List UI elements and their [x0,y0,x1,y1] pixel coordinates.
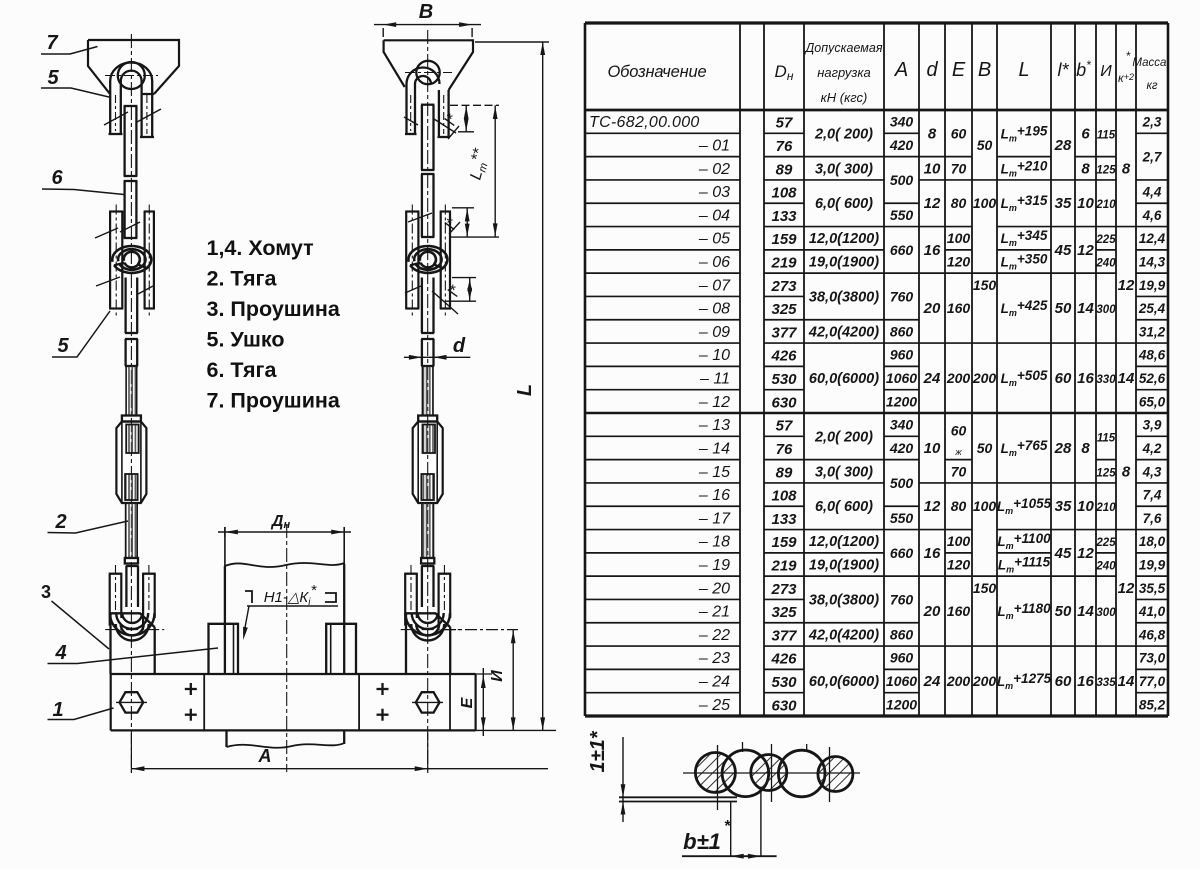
svg-text:120: 120 [947,557,971,573]
svg-text:80: 80 [951,195,967,211]
svg-text:960: 960 [890,347,914,363]
svg-text:52,6: 52,6 [1139,371,1166,386]
svg-text:12,0(1200): 12,0(1200) [809,534,879,550]
svg-text:19,9: 19,9 [1139,278,1166,293]
svg-text:И: И [489,670,506,682]
svg-text:660: 660 [890,242,914,258]
svg-text:– 25: – 25 [698,697,730,714]
svg-text:3,9: 3,9 [1143,418,1162,433]
svg-text:330: 330 [1096,374,1116,386]
svg-text:19,9: 19,9 [1139,558,1166,573]
svg-text:77,0: 77,0 [1139,674,1166,689]
svg-text:57: 57 [776,418,793,435]
svg-text:3. Проушина: 3. Проушина [207,297,341,321]
svg-text:– 01: – 01 [698,137,730,154]
svg-text:530: 530 [771,371,797,388]
svg-text:125: 125 [1096,164,1116,176]
svg-text:60: 60 [1055,673,1072,690]
svg-text:– 10: – 10 [698,347,730,364]
svg-text:7: 7 [46,32,58,54]
svg-text:*: * [724,818,731,835]
svg-text:76: 76 [776,441,793,458]
svg-text:– 03: – 03 [698,184,730,201]
svg-text:10: 10 [1077,498,1094,515]
svg-text:240: 240 [1095,258,1116,270]
svg-text:– 21: – 21 [698,604,730,621]
svg-text:12,4: 12,4 [1139,231,1166,246]
svg-text:20: 20 [923,603,941,620]
svg-text:160: 160 [947,300,971,316]
svg-text:100: 100 [947,533,971,549]
svg-text:E: E [952,59,966,81]
svg-text:– 09: – 09 [698,324,730,341]
svg-text:12: 12 [1077,545,1094,562]
svg-text:19,0(1900): 19,0(1900) [809,255,879,271]
svg-text:– 14: – 14 [698,440,730,457]
svg-text:– 16: – 16 [698,487,730,504]
svg-text:377: 377 [771,324,797,341]
svg-text:660: 660 [890,545,914,561]
svg-text:4: 4 [54,642,66,664]
svg-text:16: 16 [1077,673,1094,690]
svg-text:– 04: – 04 [698,207,730,224]
svg-text:6,0( 600): 6,0( 600) [815,499,873,515]
svg-text:25,4: 25,4 [1138,301,1166,316]
svg-text:ТС-682,00.000: ТС-682,00.000 [589,114,700,131]
svg-text:L: L [514,384,536,396]
svg-text:42,0(4200): 42,0(4200) [808,324,879,340]
svg-text:125: 125 [1096,467,1116,479]
svg-text:200: 200 [972,673,997,689]
svg-text:8: 8 [928,125,937,142]
svg-text:2: 2 [54,511,66,533]
svg-text:300: 300 [1096,607,1116,619]
svg-text:10: 10 [924,440,941,457]
svg-text:500: 500 [890,172,914,188]
svg-text:3,0( 300): 3,0( 300) [815,464,873,480]
svg-text:80: 80 [951,498,967,514]
svg-text:35,5: 35,5 [1139,581,1166,596]
svg-text:60,0(6000): 60,0(6000) [809,371,879,387]
svg-text:159: 159 [771,231,797,248]
svg-text:– 17: – 17 [698,510,731,527]
svg-text:60,0(6000): 60,0(6000) [809,674,879,690]
svg-text:426: 426 [770,348,797,365]
svg-text:B: B [419,1,433,23]
svg-text:– 22: – 22 [698,627,730,644]
svg-text:150: 150 [973,277,997,293]
svg-text:150: 150 [973,580,997,596]
svg-text:630: 630 [771,697,797,714]
svg-text:6: 6 [51,167,63,189]
svg-text:– 08: – 08 [698,301,730,318]
svg-text:2,3: 2,3 [1142,115,1162,130]
svg-text:860: 860 [890,626,914,642]
svg-text:89: 89 [776,161,793,178]
svg-text:l*: l* [1057,60,1069,80]
svg-text:65,0: 65,0 [1139,394,1166,409]
svg-text:2,7: 2,7 [1142,150,1163,165]
svg-text:– 24: – 24 [698,674,730,691]
svg-text:60: 60 [1055,370,1072,387]
svg-text:18,0: 18,0 [1139,534,1166,549]
svg-text:70: 70 [951,160,967,176]
svg-text:115: 115 [1097,129,1116,141]
svg-text:B: B [978,59,991,81]
svg-text:16: 16 [924,242,941,259]
svg-text:45: 45 [1054,545,1072,562]
svg-text:12: 12 [1077,242,1094,259]
svg-text:20: 20 [923,300,941,317]
svg-text:85,2: 85,2 [1139,697,1166,712]
svg-text:L: L [1018,59,1029,81]
svg-text:24: 24 [923,673,941,690]
svg-text:– 18: – 18 [698,534,730,551]
svg-text:219: 219 [770,558,797,575]
svg-text:200: 200 [946,370,971,386]
svg-text:273: 273 [770,278,797,295]
svg-text:ж: ж [954,447,962,457]
svg-text:200: 200 [972,370,997,386]
svg-text:Обозначение: Обозначение [608,63,707,81]
svg-text:50: 50 [977,137,993,153]
svg-text:210: 210 [1095,199,1116,211]
svg-text:d: d [926,59,938,81]
svg-text:45: 45 [1054,242,1072,259]
svg-text:6: 6 [1081,125,1090,142]
svg-text:Масса,: Масса, [1132,57,1169,69]
svg-text:4,3: 4,3 [1142,464,1162,479]
svg-text:14: 14 [1077,603,1094,620]
svg-text:960: 960 [890,650,914,666]
svg-text:35: 35 [1055,195,1072,212]
svg-text:50: 50 [1055,300,1072,317]
svg-text:– 05: – 05 [698,231,730,248]
svg-text:1060: 1060 [886,673,917,689]
svg-text:420: 420 [889,137,914,153]
svg-text:14: 14 [1077,300,1094,317]
svg-text:4,2: 4,2 [1142,441,1162,456]
svg-text:1: 1 [52,699,63,721]
svg-text:– 19: – 19 [698,557,730,574]
svg-text:73,0: 73,0 [1139,651,1166,666]
svg-text:500: 500 [890,475,914,491]
svg-text:8: 8 [1122,463,1131,480]
svg-text:кг: кг [1146,80,1157,92]
svg-text:57: 57 [776,115,793,132]
svg-text:76: 76 [776,138,793,155]
svg-text:– 06: – 06 [698,254,730,271]
svg-text:115: 115 [1097,432,1116,444]
svg-text:335: 335 [1096,677,1116,689]
svg-text:225: 225 [1095,537,1116,549]
svg-text:– 23: – 23 [698,650,730,667]
svg-text:7,6: 7,6 [1143,511,1162,526]
svg-text:325: 325 [771,301,797,318]
svg-text:14: 14 [1118,673,1135,690]
svg-text:340: 340 [890,114,914,130]
svg-text:70: 70 [951,463,967,479]
svg-text:340: 340 [890,417,914,433]
svg-text:12,0(1200): 12,0(1200) [809,231,879,247]
svg-text:108: 108 [771,488,797,505]
svg-text:377: 377 [771,627,797,644]
svg-text:– 02: – 02 [698,161,730,178]
svg-text:10: 10 [1077,195,1094,212]
svg-text:– 07: – 07 [698,277,731,294]
svg-text:E: E [459,696,476,708]
svg-text:4,4: 4,4 [1142,185,1162,200]
svg-text:5. Ушко: 5. Ушко [207,328,285,352]
svg-text:530: 530 [771,674,797,691]
svg-text:630: 630 [771,394,797,411]
svg-text:300: 300 [1096,304,1116,316]
svg-text:1,4. Хомут: 1,4. Хомут [207,236,314,260]
svg-text:A: A [258,746,272,766]
svg-text:8: 8 [1081,440,1090,457]
svg-text:1±1*: 1±1* [587,730,609,772]
svg-text:12: 12 [1118,277,1135,294]
svg-text:210: 210 [1095,502,1116,514]
svg-text:1200: 1200 [886,393,917,409]
svg-text:31,2: 31,2 [1139,324,1166,339]
svg-text:19,0(1900): 19,0(1900) [809,558,879,574]
svg-text:И: И [1100,63,1112,80]
svg-text:426: 426 [770,651,797,668]
svg-text:28: 28 [1054,440,1072,457]
svg-text:50: 50 [977,440,993,456]
svg-text:14: 14 [1118,370,1135,387]
svg-text:219: 219 [770,255,797,272]
svg-text:273: 273 [770,581,797,598]
svg-text:*: * [1126,49,1131,63]
svg-text:14,3: 14,3 [1139,255,1166,270]
svg-text:12: 12 [924,498,941,515]
svg-text:10: 10 [924,160,941,177]
svg-text:– 15: – 15 [698,464,730,481]
svg-text:550: 550 [890,207,914,223]
svg-text:550: 550 [890,510,914,526]
svg-text:60: 60 [951,125,967,141]
svg-text:100: 100 [973,195,997,211]
svg-text:860: 860 [890,323,914,339]
svg-text:38,0(3800): 38,0(3800) [809,592,879,608]
svg-text:5: 5 [47,67,59,89]
svg-text:42,0(4200): 42,0(4200) [808,627,879,643]
svg-text:нагрузка: нагрузка [817,65,871,80]
svg-text:8: 8 [1122,160,1131,177]
svg-text:8: 8 [1081,160,1090,177]
svg-text:420: 420 [889,440,914,456]
svg-text:– 11: – 11 [699,371,730,388]
svg-text:3,0( 300): 3,0( 300) [815,161,873,177]
svg-text:120: 120 [947,254,971,270]
svg-text:6. Тяга: 6. Тяга [207,358,278,382]
svg-text:d: d [453,335,466,357]
svg-text:2,0( 200): 2,0( 200) [814,429,873,445]
svg-text:89: 89 [776,464,793,481]
svg-text:108: 108 [771,185,797,202]
svg-text:48,6: 48,6 [1138,348,1166,363]
svg-text:35: 35 [1055,498,1072,515]
svg-text:5: 5 [57,335,69,357]
svg-text:4,6: 4,6 [1142,208,1162,223]
svg-text:Допускаемая: Допускаемая [804,41,883,55]
svg-text:– 13: – 13 [698,417,730,434]
svg-text:2. Тяга: 2. Тяга [207,267,278,291]
svg-text:38,0(3800): 38,0(3800) [809,289,879,305]
svg-text:46,8: 46,8 [1138,627,1166,642]
svg-text:7,4: 7,4 [1143,488,1162,503]
svg-text:133: 133 [771,511,797,528]
svg-text:160: 160 [947,603,971,619]
svg-text:240: 240 [1095,561,1116,573]
svg-text:100: 100 [947,230,971,246]
svg-text:41,0: 41,0 [1138,604,1166,619]
svg-text:1200: 1200 [886,696,917,712]
svg-text:28: 28 [1054,137,1072,154]
svg-text:16: 16 [924,545,941,562]
svg-text:2,0( 200): 2,0( 200) [814,126,873,142]
svg-text:A: A [894,59,908,81]
svg-text:16: 16 [1077,370,1094,387]
svg-text:133: 133 [771,208,797,225]
svg-text:60: 60 [951,423,967,439]
svg-text:кН (кгс): кН (кгс) [821,90,868,105]
svg-text:159: 159 [771,534,797,551]
svg-text:100: 100 [973,498,997,514]
svg-text:6,0( 600): 6,0( 600) [815,196,873,212]
svg-text:760: 760 [890,591,914,607]
svg-text:12: 12 [924,195,941,212]
svg-text:b±1: b±1 [683,829,721,854]
svg-text:3: 3 [41,582,51,602]
svg-text:– 20: – 20 [698,580,730,597]
svg-text:12: 12 [1118,580,1135,597]
svg-text:24: 24 [923,370,941,387]
svg-text:– 12: – 12 [698,394,730,411]
svg-text:760: 760 [890,288,914,304]
svg-text:1060: 1060 [886,370,917,386]
svg-text:225: 225 [1095,234,1116,246]
svg-text:325: 325 [771,604,797,621]
svg-text:7. Проушина: 7. Проушина [207,389,341,413]
svg-text:200: 200 [946,673,971,689]
svg-text:50: 50 [1055,603,1072,620]
